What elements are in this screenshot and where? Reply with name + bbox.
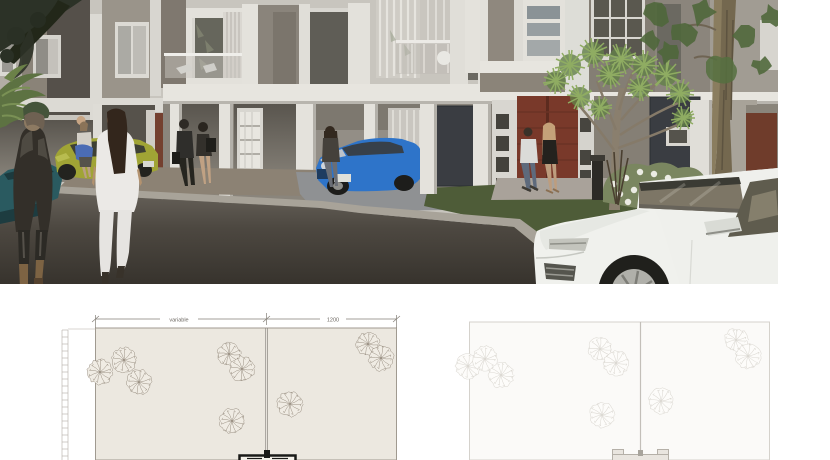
svg-text:1200: 1200 (327, 318, 339, 324)
svg-text:variable: variable (169, 318, 188, 324)
